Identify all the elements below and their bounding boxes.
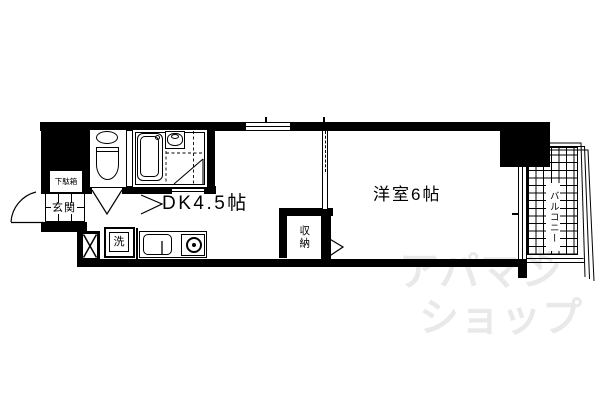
divider-sliding-door-dashes bbox=[325, 131, 326, 172]
top-wall-window bbox=[246, 122, 290, 131]
entrance-label: 玄関 bbox=[51, 203, 77, 214]
window-right-centerline bbox=[522, 167, 523, 259]
toilet-bowl bbox=[96, 147, 119, 180]
closet-box: 収納 bbox=[287, 216, 321, 258]
divider-sliding-door bbox=[322, 131, 328, 209]
window-right bbox=[518, 167, 527, 259]
shoe-cabinet-box: 下駄箱 bbox=[48, 169, 84, 194]
western-room-label: 洋室6帖 bbox=[373, 186, 441, 203]
wall-closet-top bbox=[279, 208, 333, 216]
balcony-label: バルコニー bbox=[548, 191, 558, 244]
balcony-label-strip: バルコニー bbox=[546, 183, 560, 251]
bathtub-knob bbox=[155, 135, 160, 140]
bath-door-threshold bbox=[172, 188, 204, 192]
toilet-seat-line bbox=[97, 151, 118, 152]
hall-dk-door bbox=[141, 195, 162, 214]
wall-top-right bbox=[290, 122, 501, 131]
closet-label: 収納 bbox=[299, 225, 310, 250]
entrance-door-arc bbox=[11, 192, 44, 223]
floorplan-canvas: アパマン ド ショップ 玄関 下駄箱 洗 bbox=[0, 0, 600, 400]
washer-kitchen-divider bbox=[136, 228, 138, 259]
washer-inner: 洗 bbox=[109, 232, 129, 252]
bathtub bbox=[137, 133, 163, 181]
watermark-line2: ショップ bbox=[419, 298, 583, 338]
pipe-shaft-box bbox=[80, 231, 100, 261]
washer-box: 洗 bbox=[104, 227, 135, 258]
top-wall-window-midline bbox=[246, 126, 290, 127]
kitchen-sink bbox=[143, 234, 172, 255]
bathtub-inner bbox=[140, 136, 159, 177]
divider-top-tick bbox=[323, 117, 325, 122]
wall-closet-left bbox=[279, 208, 287, 258]
toilet-tank bbox=[96, 131, 118, 144]
linework-overlay bbox=[0, 0, 600, 400]
wall-bath-right bbox=[207, 127, 215, 194]
shoe-cabinet-label: 下駄箱 bbox=[55, 178, 78, 186]
stove-burner-center bbox=[192, 243, 196, 247]
wall-bottom bbox=[77, 259, 527, 267]
washer-label: 洗 bbox=[114, 237, 125, 248]
wall-divider-lower bbox=[321, 209, 331, 267]
dk-room-label: DK4.5帖 bbox=[162, 194, 249, 213]
wall-window-bottom-stub bbox=[518, 259, 527, 278]
bath-sink-basin-inner bbox=[171, 134, 179, 139]
